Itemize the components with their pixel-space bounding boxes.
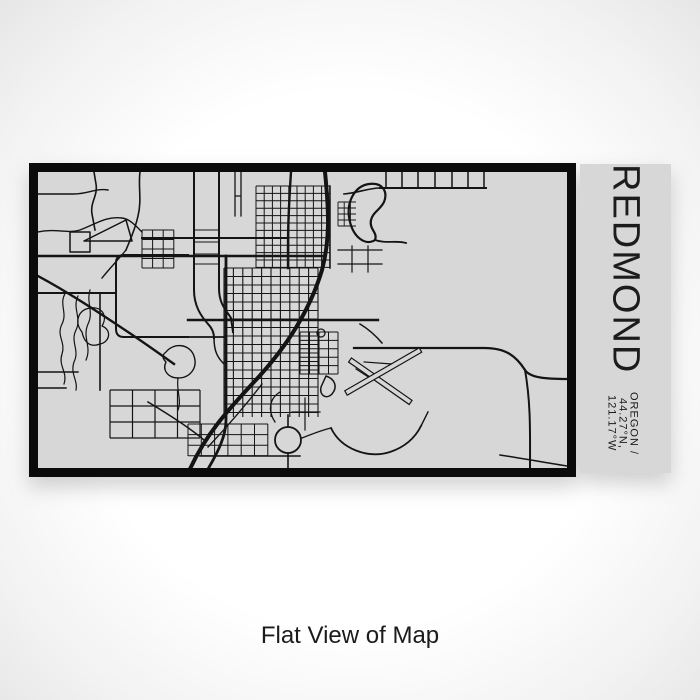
- label-panel: REDMOND OREGON / 44.27°N, 121.17°W: [580, 164, 671, 473]
- map-print-card: REDMOND OREGON / 44.27°N, 121.17°W: [29, 163, 671, 477]
- map-frame: [29, 163, 576, 477]
- map-subtitle: OREGON / 44.27°N, 121.17°W: [606, 374, 639, 473]
- map-graphic: [38, 172, 567, 468]
- view-caption: Flat View of Map: [0, 619, 700, 653]
- vertical-text-block: REDMOND OREGON / 44.27°N, 121.17°W: [606, 164, 646, 473]
- backdrop: REDMOND OREGON / 44.27°N, 121.17°W Flat …: [0, 0, 700, 700]
- map-title: REDMOND: [607, 164, 645, 374]
